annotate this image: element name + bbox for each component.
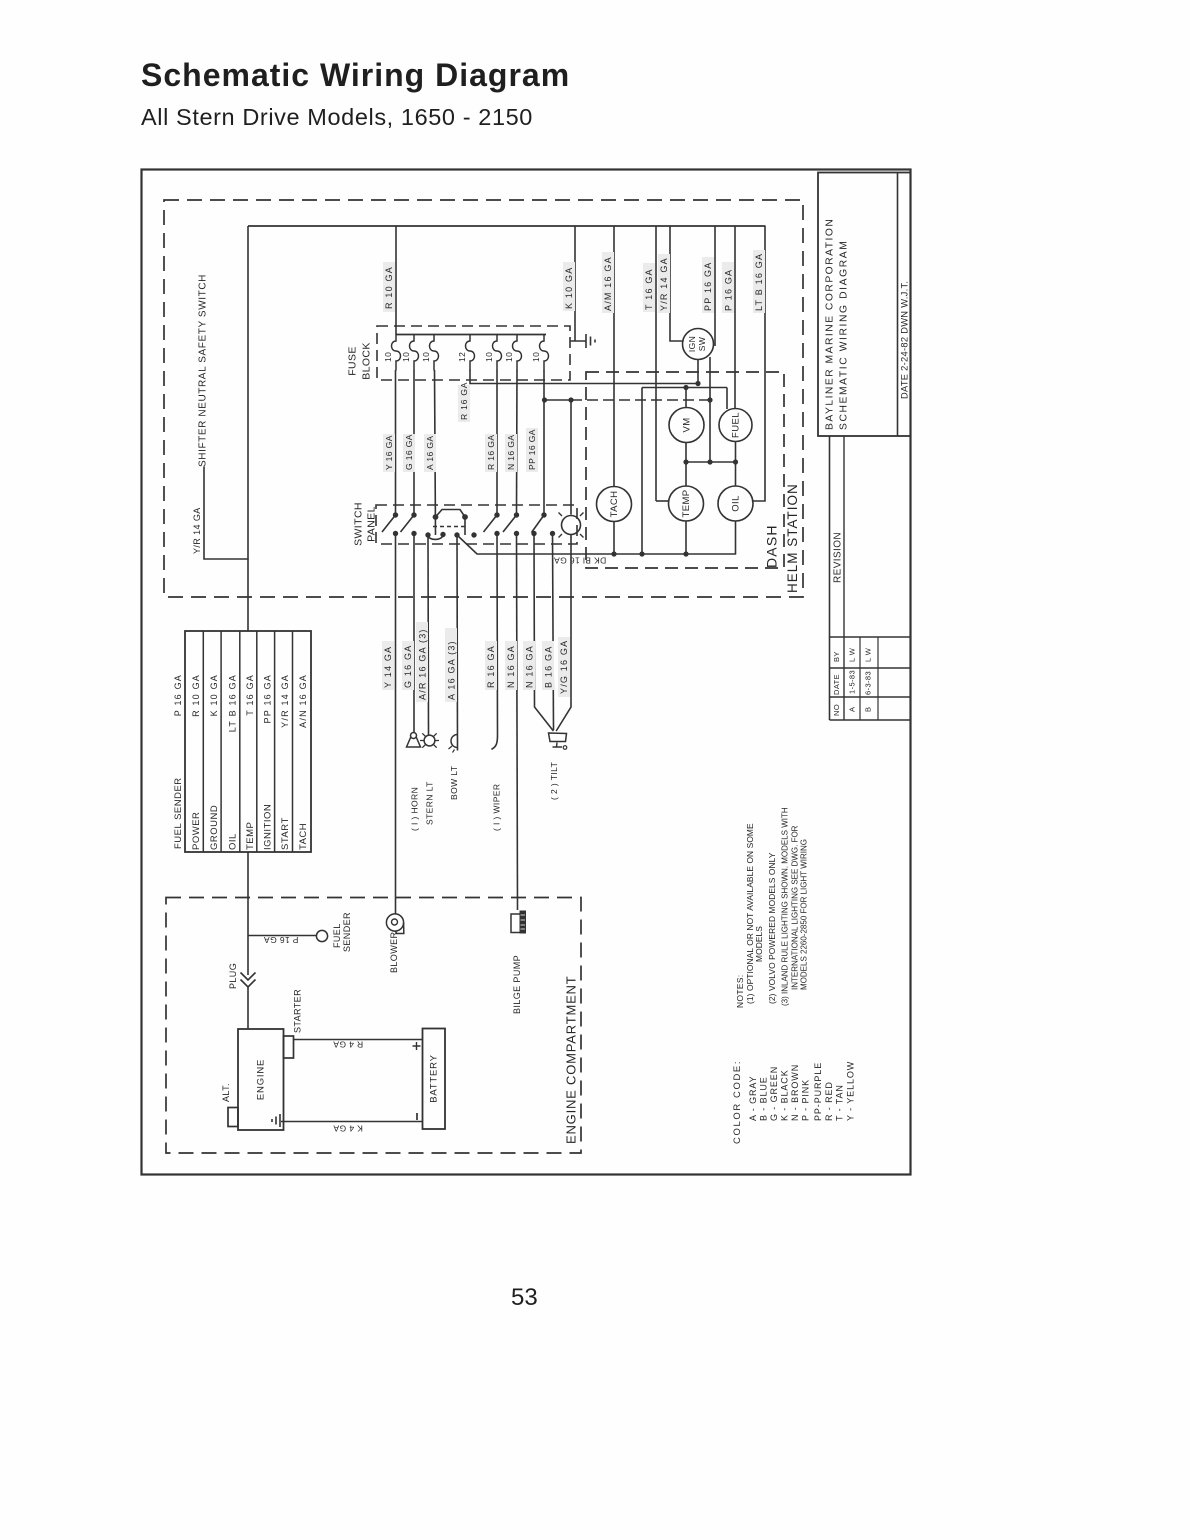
svg-text:K 4 GA: K 4 GA	[333, 1124, 363, 1134]
svg-text:(2) VOLVO POWERED MODELS ONLY: (2) VOLVO POWERED MODELS ONLY	[767, 852, 777, 1004]
svg-text:A/N 16 GA: A/N 16 GA	[298, 674, 308, 728]
svg-text:A - GRAY: A - GRAY	[748, 1075, 758, 1121]
svg-text:PP-PURPLE: PP-PURPLE	[813, 1062, 823, 1121]
svg-text:R 16 GA: R 16 GA	[486, 645, 496, 688]
svg-text:R 16 GA: R 16 GA	[486, 435, 496, 470]
svg-text:Y/R 14 GA: Y/R 14 GA	[280, 674, 290, 728]
svg-text:BOW LT: BOW LT	[449, 766, 459, 800]
svg-text:MODELS: MODELS	[754, 926, 764, 962]
svg-text:P 16 GA: P 16 GA	[723, 269, 733, 311]
svg-text:B 16 GA: B 16 GA	[543, 646, 553, 688]
svg-text:PP 16 GA: PP 16 GA	[527, 429, 537, 470]
svg-text:DATE: DATE	[832, 674, 841, 695]
svg-text:SWITCH: SWITCH	[352, 502, 364, 546]
svg-text:B: B	[863, 707, 872, 712]
svg-text:L W: L W	[847, 647, 856, 662]
svg-text:T 16 GA: T 16 GA	[644, 268, 654, 310]
svg-text:ALT.: ALT.	[221, 1083, 231, 1102]
svg-text:R 10 GA: R 10 GA	[191, 674, 201, 717]
svg-text:P 16 GA: P 16 GA	[264, 935, 299, 945]
svg-text:PP 16 GA: PP 16 GA	[262, 674, 272, 723]
svg-text:SCHEMATIC WIRING DIAGRAM: SCHEMATIC WIRING DIAGRAM	[838, 240, 849, 430]
svg-text:IGN: IGN	[687, 336, 697, 352]
svg-text:6-3-83: 6-3-83	[863, 671, 872, 695]
svg-text:NOTES:: NOTES:	[735, 974, 745, 1008]
svg-text:( I ) HORN: ( I ) HORN	[409, 787, 419, 831]
svg-text:N 16 GA: N 16 GA	[506, 645, 516, 688]
svg-text:FUEL SENDER: FUEL SENDER	[173, 777, 184, 849]
svg-text:A: A	[847, 707, 856, 712]
svg-text:MODELS 2260-2850 FOR LIGHT WIR: MODELS 2260-2850 FOR LIGHT WIRING	[800, 839, 809, 990]
svg-text:T - TAN: T - TAN	[834, 1084, 844, 1121]
svg-text:10: 10	[504, 352, 514, 362]
svg-text:R 16 GA: R 16 GA	[459, 382, 469, 420]
svg-text:DK Bl 16 GA: DK Bl 16 GA	[554, 556, 607, 566]
svg-text:10: 10	[421, 352, 431, 362]
svg-text:10: 10	[484, 352, 494, 362]
svg-text:( 2 ) TILT: ( 2 ) TILT	[549, 762, 559, 800]
svg-text:START: START	[280, 817, 291, 850]
svg-text:K - BLACK: K - BLACK	[779, 1069, 789, 1121]
svg-text:1-5-83: 1-5-83	[847, 670, 856, 694]
svg-text:T 16 GA: T 16 GA	[245, 674, 255, 716]
svg-text:STARTER: STARTER	[292, 989, 302, 1033]
svg-text:Y - YELLOW: Y - YELLOW	[845, 1061, 855, 1121]
svg-text:A/M 16 GA: A/M 16 GA	[603, 256, 613, 311]
svg-text:G 16 GA: G 16 GA	[404, 434, 414, 470]
svg-text:L W: L W	[863, 647, 872, 662]
svg-text:10: 10	[531, 352, 541, 362]
svg-text:P 16 GA: P 16 GA	[173, 674, 183, 716]
svg-text:FUEL: FUEL	[731, 412, 742, 438]
svg-text:IGNITION: IGNITION	[263, 804, 274, 850]
svg-text:COLOR CODE:: COLOR CODE:	[732, 1060, 743, 1144]
svg-text:SW: SW	[697, 337, 707, 352]
svg-text:12: 12	[457, 352, 467, 362]
svg-text:INTERNATIONAL LIGHTING SEE DWG: INTERNATIONAL LIGHTING SEE DWG. FOR	[791, 825, 800, 990]
svg-text:HELM STATION: HELM STATION	[785, 483, 800, 593]
svg-text:ENGINE COMPARTMENT: ENGINE COMPARTMENT	[563, 976, 578, 1144]
svg-text:TACH: TACH	[298, 823, 309, 850]
svg-text:OIL: OIL	[228, 833, 239, 850]
svg-text:P - PINK: P - PINK	[800, 1079, 810, 1121]
svg-text:DATE 2-24-82 DWN W.J.T.: DATE 2-24-82 DWN W.J.T.	[900, 281, 910, 399]
svg-text:VM: VM	[682, 417, 693, 432]
svg-text:N - BROWN: N - BROWN	[790, 1064, 800, 1121]
svg-text:TEMP: TEMP	[681, 490, 692, 518]
svg-text:G 16 GA: G 16 GA	[403, 645, 413, 688]
svg-text:BLOWER: BLOWER	[389, 931, 399, 973]
svg-text:ENGINE: ENGINE	[256, 1059, 267, 1100]
svg-text:STERN LT: STERN LT	[424, 781, 434, 825]
svg-text:(3) INLAND RULE LIGHTING SHOWN: (3) INLAND RULE LIGHTING SHOWN. MODELS W…	[781, 807, 790, 1006]
svg-text:A 16 GA: A 16 GA	[425, 436, 435, 470]
svg-text:PP 16 GA: PP 16 GA	[703, 262, 713, 311]
svg-text:A 16 GA (3): A 16 GA (3)	[446, 640, 456, 700]
svg-text:BAYLINER MARINE CORPORATION: BAYLINER MARINE CORPORATION	[824, 218, 835, 430]
svg-text:LT B 16 GA: LT B 16 GA	[227, 674, 237, 732]
svg-text:OIL: OIL	[731, 495, 742, 512]
svg-text:FUSE: FUSE	[346, 346, 358, 376]
svg-text:FUEL: FUEL	[332, 923, 342, 948]
svg-text:POWER: POWER	[191, 812, 202, 850]
svg-text:SENDER: SENDER	[342, 912, 352, 952]
svg-text:Y/R 14 GA: Y/R 14 GA	[192, 507, 202, 554]
svg-text:B - BLUE: B - BLUE	[758, 1076, 768, 1121]
svg-text:Y 14 GA: Y 14 GA	[383, 646, 393, 688]
svg-text:PLUG: PLUG	[228, 963, 238, 989]
svg-text:Y/R 14 GA: Y/R 14 GA	[659, 257, 669, 311]
svg-text:10: 10	[383, 352, 393, 362]
svg-text:TACH: TACH	[609, 491, 620, 518]
svg-text:TEMP: TEMP	[245, 822, 256, 850]
svg-text:Y 16 GA: Y 16 GA	[384, 435, 394, 470]
svg-text:SHIFTER NEUTRAL SAFETY SWIT: SHIFTER NEUTRAL SAFETY SWITCH	[197, 274, 208, 467]
svg-text:BLOCK: BLOCK	[360, 342, 372, 380]
svg-text:K 10 GA: K 10 GA	[209, 674, 219, 716]
svg-text:R 4 GA: R 4 GA	[333, 1040, 363, 1050]
svg-text:N 16 GA: N 16 GA	[506, 435, 516, 470]
svg-text:BY: BY	[832, 651, 841, 662]
svg-text:PANEL: PANEL	[365, 506, 377, 542]
svg-text:A/R 16 GA (3): A/R 16 GA (3)	[417, 628, 427, 700]
svg-text:LT B 16 GA: LT B 16 GA	[754, 253, 764, 311]
svg-text:NO: NO	[832, 704, 841, 716]
svg-text:10: 10	[401, 352, 411, 362]
svg-text:G - GREEN: G - GREEN	[769, 1066, 779, 1121]
svg-text:BILGE PUMP: BILGE PUMP	[512, 955, 522, 1014]
svg-text:GROUND: GROUND	[209, 805, 220, 850]
svg-text:REVISION: REVISION	[832, 532, 843, 583]
svg-text:N 16 GA: N 16 GA	[524, 645, 534, 688]
svg-text:Y/G 16 GA: Y/G 16 GA	[559, 640, 569, 694]
svg-text:(1) OPTIONAL OR NOT AVAILABLE: (1) OPTIONAL OR NOT AVAILABLE ON SOME	[745, 823, 755, 1004]
svg-text:BATTERY: BATTERY	[429, 1054, 440, 1103]
svg-text:R 10 GA: R 10 GA	[384, 266, 394, 309]
svg-text:K 10 GA: K 10 GA	[564, 267, 574, 309]
svg-text:R - RED: R - RED	[824, 1081, 834, 1121]
svg-text:DASH: DASH	[764, 524, 780, 568]
svg-text:( I ) WIPER: ( I ) WIPER	[491, 784, 501, 831]
